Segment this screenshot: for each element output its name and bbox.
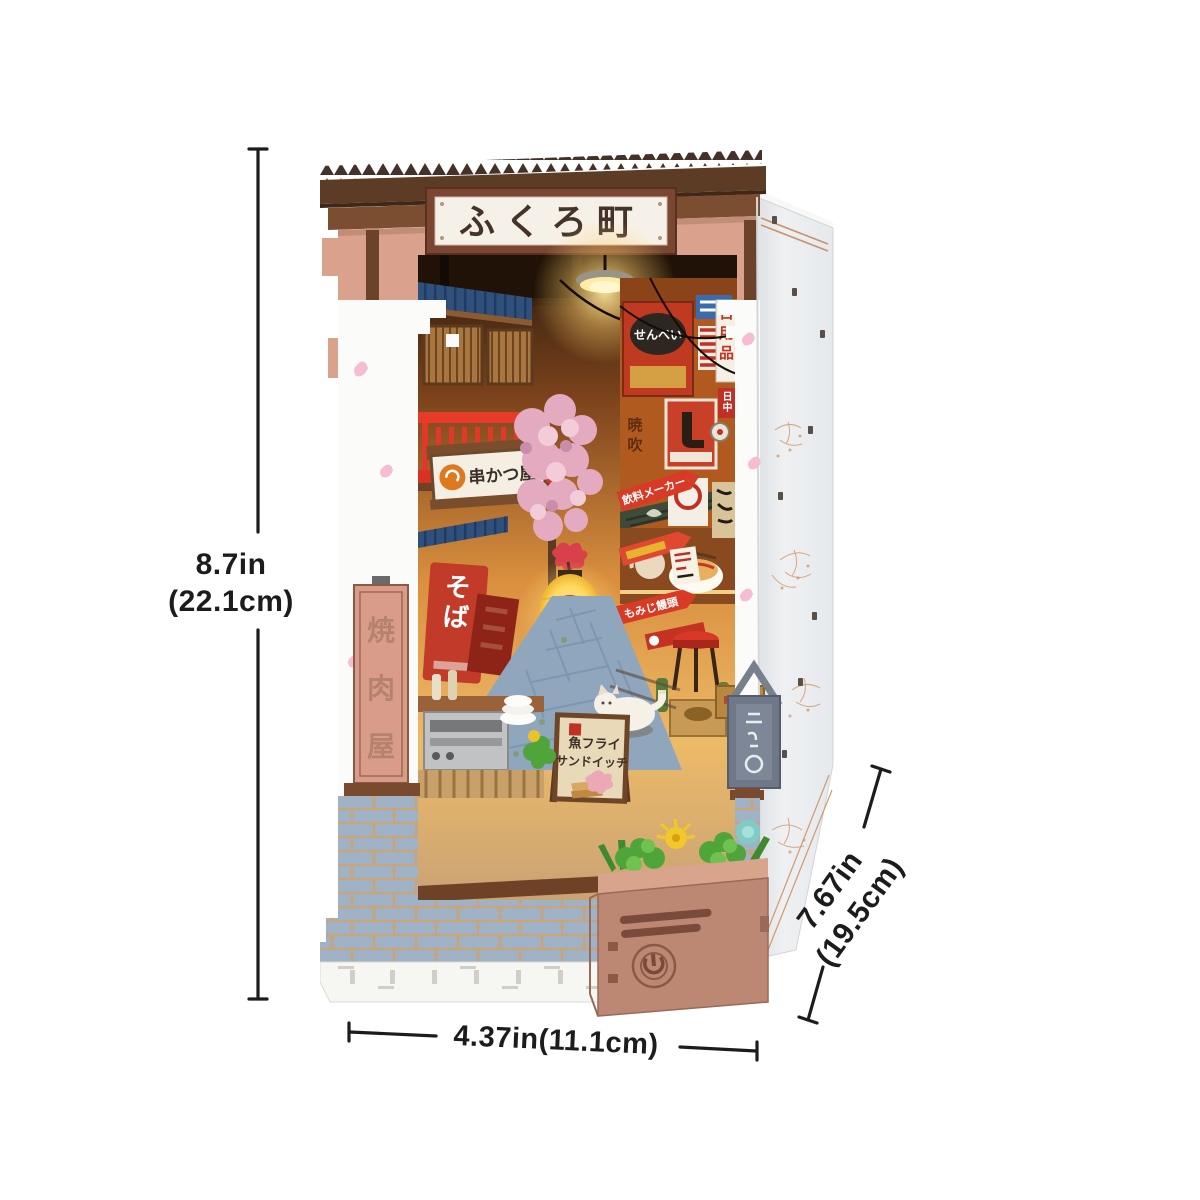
product-dimension-image: ふくろ町	[0, 0, 1200, 1200]
height-cm: (22.1cm)	[140, 583, 322, 620]
height-inches: 8.7in	[140, 546, 322, 583]
height-dimension-label: 8.7in (22.1cm)	[140, 546, 322, 620]
